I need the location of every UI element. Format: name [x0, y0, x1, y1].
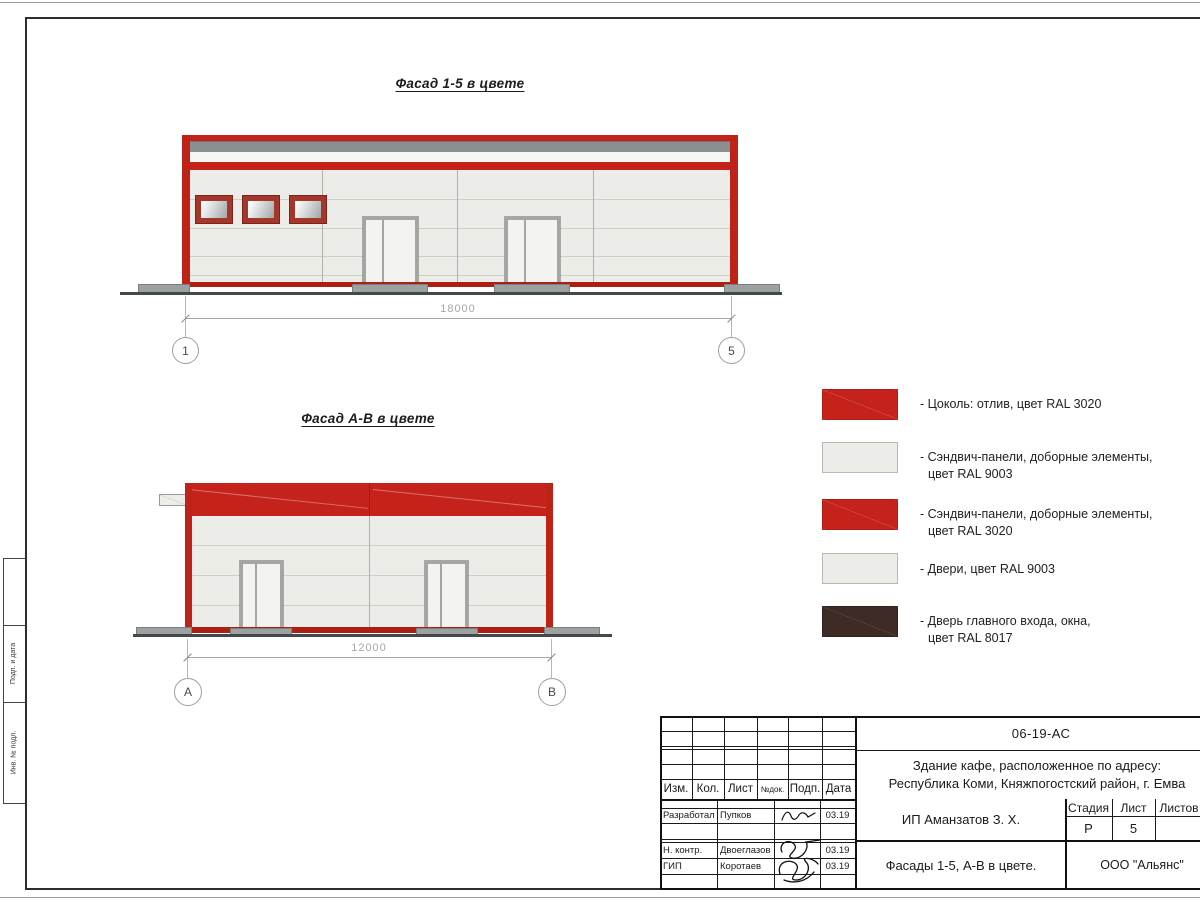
dimension-label: 12000: [294, 642, 444, 654]
axis-label: А: [184, 685, 192, 699]
facade-a-b-title: Фасад А-В в цвете: [248, 411, 488, 426]
sheet-title: Фасады 1-5, А-В в цвете.: [857, 842, 1065, 888]
fascia-white-band: [188, 152, 732, 162]
door: [240, 561, 283, 632]
grid-line: [660, 746, 855, 747]
legend-swatch-panels-3020: [822, 499, 898, 530]
facade-a-b-drawing: [185, 483, 553, 633]
signature: [772, 836, 824, 884]
sheets-value: [1155, 816, 1200, 840]
red-stripe: [188, 162, 732, 170]
legend-label-line: - Сэндвич-панели, доборные элементы,: [920, 506, 1153, 523]
titleblock-border: [660, 888, 1200, 890]
parapet-highlight-line: [373, 489, 548, 508]
row-name: Коротаев: [720, 858, 774, 874]
parapet-joint-line: [369, 483, 370, 516]
ground-line: [133, 634, 612, 637]
axis-marker-5: 5: [718, 337, 745, 364]
legend-label-line: цвет RAL 8017: [920, 630, 1091, 647]
plinth-strip: [190, 282, 730, 287]
panel-vertical-joint: [322, 170, 323, 282]
door: [505, 217, 560, 287]
axis-label: 5: [728, 344, 735, 358]
window: [243, 196, 279, 223]
door-leaf: [366, 220, 384, 284]
client-name: ИП Аманзатов З. Х.: [857, 799, 1065, 840]
legend-label: - Сэндвич-панели, доборные элементы, цве…: [920, 449, 1153, 483]
row-role: ГИП: [663, 858, 717, 874]
facade-1-5-title: Фасад 1-5 в цвете: [330, 76, 590, 91]
sheets-label: Листов: [1155, 799, 1200, 816]
grid-line: [660, 823, 855, 824]
grid-section-line: [660, 799, 855, 801]
panel-vertical-joint: [369, 516, 370, 627]
object-title-line1: Здание кафе, расположенное по адресу:: [913, 757, 1161, 775]
door-leaf: [243, 564, 257, 629]
paper-edge-top: [0, 2, 1200, 3]
door: [425, 561, 468, 632]
door: [363, 217, 418, 287]
titleblock-border: [660, 716, 662, 890]
frame-left-line: [25, 17, 27, 890]
grid-line: [660, 731, 855, 732]
sheet-label: Лист: [1112, 799, 1155, 816]
axis-label: 1: [182, 344, 189, 358]
legend-label: - Сэндвич-панели, доборные элементы, цве…: [920, 506, 1153, 540]
door-leaf: [428, 564, 442, 629]
object-title-line2: Республика Коми, Княжпогостский район, г…: [889, 775, 1186, 793]
legend-label-line: - Дверь главного входа, окна,: [920, 613, 1091, 630]
col-header-data: Дата: [822, 779, 855, 799]
legend-swatch-entrance: [822, 606, 898, 637]
side-column-divider: [3, 803, 25, 804]
organization-name: ООО "Альянс": [1067, 842, 1200, 888]
legend-swatch-panels-9003: [822, 442, 898, 473]
panel-joint-line: [190, 275, 730, 276]
dimension-line: [187, 657, 551, 658]
ground-line: [120, 292, 782, 295]
gutter-outlet: [159, 494, 187, 506]
col-header-izm: Изм.: [660, 779, 692, 799]
row-name: Пупков: [720, 808, 774, 823]
doc-number: 06-19-АС: [857, 716, 1200, 750]
row-role: Н. контр.: [663, 842, 717, 858]
fascia-gray-band: [188, 141, 732, 152]
door-leaf: [508, 220, 526, 284]
frame-top-line: [25, 17, 1200, 19]
row-date: 03.19: [820, 858, 855, 874]
legend-label-line: цвет RAL 9003: [920, 466, 1153, 483]
corner-post-right: [730, 135, 738, 287]
row-date: 03.19: [820, 808, 855, 823]
row-date: 03.19: [820, 842, 855, 858]
wall-panels: [190, 170, 730, 282]
grid-line: [660, 839, 855, 840]
dimension-label: 18000: [383, 303, 533, 315]
panel-vertical-joint: [457, 170, 458, 282]
stage-label: Стадия: [1065, 799, 1112, 816]
row-name: Двоеглазов: [720, 842, 774, 858]
window: [196, 196, 232, 223]
object-title: Здание кафе, расположенное по адресу: Ре…: [857, 750, 1200, 799]
axis-label: В: [548, 685, 556, 699]
drawing-sheet: { "facades": { "f15": { "title": "Фасад …: [0, 0, 1200, 900]
signature: [778, 808, 818, 824]
side-column-divider: [3, 558, 25, 559]
axis-marker-1: 1: [172, 337, 199, 364]
legend-label: - Двери, цвет RAL 9003: [920, 561, 1055, 578]
panel-joint-line: [190, 256, 730, 257]
panel-vertical-joint: [593, 170, 594, 282]
legend-label: - Цоколь: отлив, цвет RAL 3020: [920, 396, 1101, 413]
corner-post-left: [185, 483, 192, 633]
side-label-text: Инв. № подл.: [11, 731, 18, 775]
side-label-text: Подп. и дата: [11, 643, 18, 684]
col-header-kol: Кол.: [692, 779, 724, 799]
legend-label-line: - Сэндвич-панели, доборные элементы,: [920, 449, 1153, 466]
legend-label-line: цвет RAL 3020: [920, 523, 1153, 540]
side-label-inv-podl: Инв. № подл.: [3, 702, 25, 803]
col-header-list: Лист: [724, 779, 757, 799]
sheet-value: 5: [1112, 816, 1155, 840]
dimension-line: [185, 318, 731, 319]
grid-line: [660, 749, 855, 750]
window: [290, 196, 326, 223]
col-header-podp: Подп.: [788, 779, 822, 799]
legend-label-line: - Двери, цвет RAL 9003: [920, 561, 1055, 578]
corner-post-left: [182, 135, 190, 287]
title-block: Изм. Кол. Лист №док. Подп. Дата Разработ…: [660, 716, 1200, 890]
parapet-highlight-line: [189, 489, 368, 509]
stage-value: Р: [1065, 816, 1112, 840]
paper-edge-bottom: [0, 897, 1200, 898]
legend-label-line: - Цоколь: отлив, цвет RAL 3020: [920, 396, 1101, 413]
row-role: Разработал: [663, 808, 717, 823]
facade-1-5-drawing: [182, 135, 738, 287]
legend-label: - Дверь главного входа, окна, цвет RAL 8…: [920, 613, 1091, 647]
panel-joint-line: [190, 228, 730, 229]
grid-line: [660, 874, 855, 875]
col-header-ndoc: №док.: [757, 779, 788, 799]
corner-post-right: [546, 483, 553, 633]
side-label-podp-data: Подп. и дата: [3, 625, 25, 702]
grid-line: [660, 764, 855, 765]
axis-marker-b: В: [538, 678, 566, 706]
axis-marker-a: А: [174, 678, 202, 706]
legend-swatch-plinth: [822, 389, 898, 420]
legend-swatch-doors: [822, 553, 898, 584]
